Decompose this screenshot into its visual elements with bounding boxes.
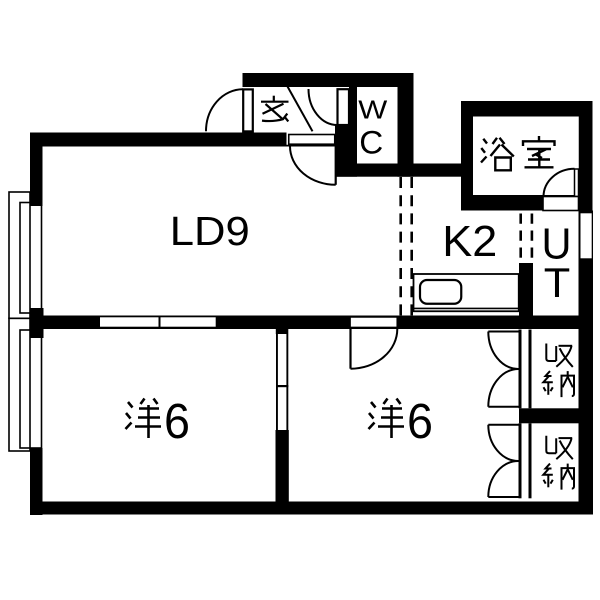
svg-text:T: T bbox=[544, 259, 571, 306]
svg-text:W: W bbox=[358, 94, 388, 124]
svg-text:6: 6 bbox=[407, 395, 433, 449]
svg-text:K2: K2 bbox=[442, 217, 497, 266]
svg-text:LD9: LD9 bbox=[170, 208, 250, 254]
svg-text:C: C bbox=[359, 124, 383, 160]
svg-text:6: 6 bbox=[164, 395, 190, 449]
